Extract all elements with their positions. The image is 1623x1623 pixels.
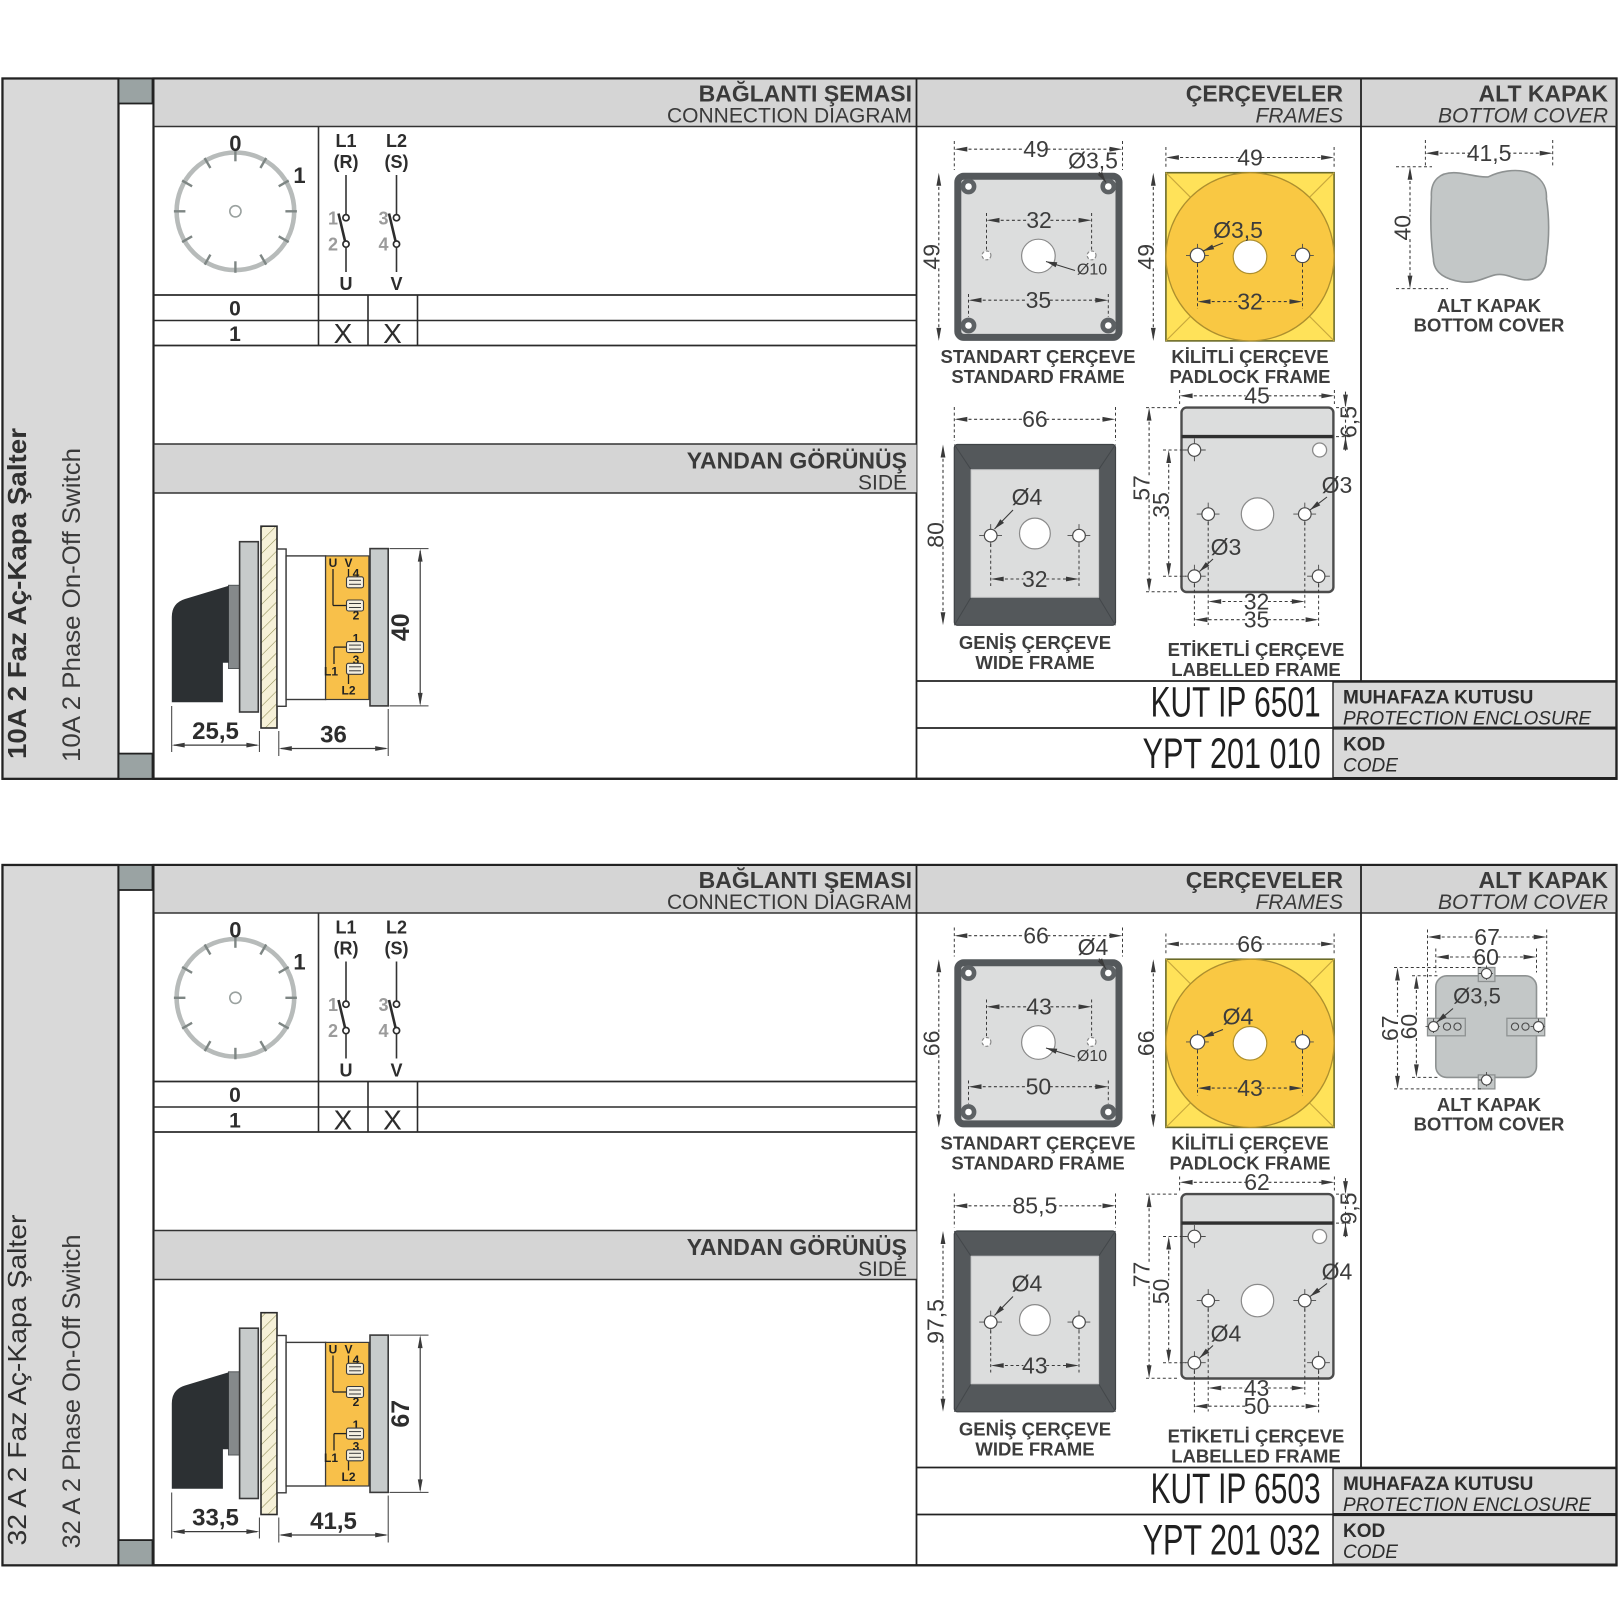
svg-text:BOTTOM COVER: BOTTOM COVER xyxy=(1438,105,1608,128)
svg-text:43: 43 xyxy=(1237,1075,1263,1101)
svg-text:50: 50 xyxy=(1148,1279,1174,1305)
svg-text:66: 66 xyxy=(1023,923,1049,949)
svg-text:BAĞLANTI ŞEMASI: BAĞLANTI ŞEMASI xyxy=(699,80,912,107)
svg-text:MUHAFAZA KUTUSU: MUHAFAZA KUTUSU xyxy=(1343,1474,1533,1495)
svg-text:GENİŞ ÇERÇEVE: GENİŞ ÇERÇEVE xyxy=(959,1419,1111,1440)
svg-text:35: 35 xyxy=(1026,287,1052,313)
svg-text:0: 0 xyxy=(229,131,241,156)
svg-text:3: 3 xyxy=(378,209,388,229)
svg-text:62: 62 xyxy=(1244,1169,1270,1195)
svg-text:PROTECTION ENCLOSURE: PROTECTION ENCLOSURE xyxy=(1343,1495,1591,1516)
svg-text:ETİKETLİ ÇERÇEVE: ETİKETLİ ÇERÇEVE xyxy=(1168,1426,1345,1447)
svg-text:LABELLED FRAME: LABELLED FRAME xyxy=(1171,659,1341,680)
svg-text:V: V xyxy=(344,556,352,570)
svg-text:4: 4 xyxy=(378,1021,388,1041)
svg-text:80: 80 xyxy=(923,522,949,548)
svg-text:Ø3,5: Ø3,5 xyxy=(1213,217,1263,243)
svg-text:49: 49 xyxy=(1133,244,1159,270)
svg-text:Ø4: Ø4 xyxy=(1012,484,1043,510)
svg-text:Ø4: Ø4 xyxy=(1223,1004,1254,1030)
svg-text:WIDE FRAME: WIDE FRAME xyxy=(975,652,1094,673)
svg-text:Ø4: Ø4 xyxy=(1012,1271,1043,1297)
svg-text:66: 66 xyxy=(1237,931,1263,957)
svg-text:YANDAN GÖRÜNÜŞ: YANDAN GÖRÜNÜŞ xyxy=(687,1234,907,1260)
svg-text:Ø10: Ø10 xyxy=(1077,1048,1107,1065)
svg-text:U: U xyxy=(340,274,353,294)
svg-text:41,5: 41,5 xyxy=(1467,140,1512,166)
svg-text:U: U xyxy=(340,1061,353,1081)
svg-text:0: 0 xyxy=(229,298,241,321)
svg-text:U: U xyxy=(329,556,338,570)
svg-text:40: 40 xyxy=(1390,215,1416,241)
svg-text:66: 66 xyxy=(918,1031,944,1057)
svg-text:MUHAFAZA KUTUSU: MUHAFAZA KUTUSU xyxy=(1343,688,1533,709)
svg-text:Ø3: Ø3 xyxy=(1322,472,1353,498)
svg-text:CODE: CODE xyxy=(1343,756,1398,777)
svg-text:0: 0 xyxy=(229,1084,241,1107)
svg-text:Ø4: Ø4 xyxy=(1322,1259,1353,1285)
svg-text:45: 45 xyxy=(1244,383,1270,409)
svg-text:BOTTOM COVER: BOTTOM COVER xyxy=(1414,1114,1565,1135)
svg-text:1: 1 xyxy=(293,163,305,188)
svg-text:L2: L2 xyxy=(386,131,407,151)
svg-text:41,5: 41,5 xyxy=(310,1508,357,1535)
svg-text:35: 35 xyxy=(1244,607,1270,633)
svg-text:CONNECTION DIAGRAM: CONNECTION DIAGRAM xyxy=(667,891,912,914)
svg-text:9,5: 9,5 xyxy=(1336,1193,1362,1225)
svg-text:X: X xyxy=(334,318,353,349)
svg-text:YANDAN GÖRÜNÜŞ: YANDAN GÖRÜNÜŞ xyxy=(687,448,907,474)
svg-text:KUT IP 6501: KUT IP 6501 xyxy=(1151,679,1321,727)
svg-text:60: 60 xyxy=(1396,1014,1422,1040)
svg-text:33,5: 33,5 xyxy=(192,1505,239,1532)
svg-text:Ø3,5: Ø3,5 xyxy=(1068,148,1118,174)
svg-text:X: X xyxy=(334,1105,353,1136)
svg-text:1: 1 xyxy=(293,950,305,975)
svg-text:X: X xyxy=(383,1105,402,1136)
svg-text:BOTTOM COVER: BOTTOM COVER xyxy=(1438,891,1608,914)
svg-text:ETİKETLİ ÇERÇEVE: ETİKETLİ ÇERÇEVE xyxy=(1168,639,1345,660)
svg-text:(R): (R) xyxy=(334,939,359,959)
svg-text:32 A 2 Phase On-Off Switch: 32 A 2 Phase On-Off Switch xyxy=(58,1235,86,1549)
svg-text:0: 0 xyxy=(229,918,241,943)
svg-text:SIDE: SIDE xyxy=(858,472,907,495)
svg-text:1: 1 xyxy=(328,209,338,229)
svg-text:L2: L2 xyxy=(341,1470,355,1484)
svg-text:6,5: 6,5 xyxy=(1336,406,1362,438)
svg-text:YPT 201 032: YPT 201 032 xyxy=(1143,1517,1321,1565)
svg-text:66: 66 xyxy=(1133,1031,1159,1057)
svg-text:32: 32 xyxy=(1237,288,1263,314)
svg-text:2: 2 xyxy=(328,235,338,255)
svg-text:(R): (R) xyxy=(334,152,359,172)
svg-text:40: 40 xyxy=(387,613,415,641)
svg-text:1: 1 xyxy=(229,323,241,346)
svg-text:10A 2 Faz Aç-Kapa Şalter: 10A 2 Faz Aç-Kapa Şalter xyxy=(2,428,32,759)
svg-text:ALT KAPAK: ALT KAPAK xyxy=(1479,867,1609,893)
svg-text:25,5: 25,5 xyxy=(192,718,239,745)
svg-text:Ø3,5: Ø3,5 xyxy=(1453,984,1501,1009)
svg-text:49: 49 xyxy=(1023,136,1049,162)
svg-text:STANDART ÇERÇEVE: STANDART ÇERÇEVE xyxy=(941,346,1136,367)
svg-text:V: V xyxy=(390,274,402,294)
svg-text:ÇERÇEVELER: ÇERÇEVELER xyxy=(1186,867,1344,893)
svg-text:L1: L1 xyxy=(335,918,356,938)
svg-text:YPT 201 010: YPT 201 010 xyxy=(1143,730,1321,778)
svg-text:L1: L1 xyxy=(324,665,338,679)
svg-text:X: X xyxy=(383,318,402,349)
svg-text:STANDART ÇERÇEVE: STANDART ÇERÇEVE xyxy=(941,1133,1136,1154)
svg-text:Ø3: Ø3 xyxy=(1211,534,1242,560)
svg-text:KOD: KOD xyxy=(1343,735,1385,756)
svg-text:43: 43 xyxy=(1022,1352,1048,1378)
svg-text:BOTTOM COVER: BOTTOM COVER xyxy=(1414,315,1565,336)
svg-text:GENİŞ ÇERÇEVE: GENİŞ ÇERÇEVE xyxy=(959,632,1111,653)
svg-text:L1: L1 xyxy=(335,131,356,151)
svg-text:43: 43 xyxy=(1026,994,1052,1020)
svg-text:ALT KAPAK: ALT KAPAK xyxy=(1479,81,1609,107)
svg-text:KİLİTLİ ÇERÇEVE: KİLİTLİ ÇERÇEVE xyxy=(1171,346,1328,367)
svg-text:CONNECTION DIAGRAM: CONNECTION DIAGRAM xyxy=(667,105,912,128)
svg-text:35: 35 xyxy=(1148,492,1174,518)
svg-text:85,5: 85,5 xyxy=(1013,1193,1058,1219)
svg-text:LABELLED FRAME: LABELLED FRAME xyxy=(1171,1446,1341,1467)
svg-text:4: 4 xyxy=(378,235,388,255)
svg-text:50: 50 xyxy=(1026,1074,1052,1100)
svg-text:ALT KAPAK: ALT KAPAK xyxy=(1437,295,1542,316)
svg-text:1: 1 xyxy=(328,995,338,1015)
svg-text:L2: L2 xyxy=(341,684,355,698)
svg-text:2: 2 xyxy=(328,1021,338,1041)
svg-text:97,5: 97,5 xyxy=(923,1299,949,1344)
svg-text:32: 32 xyxy=(1022,566,1048,592)
svg-text:3: 3 xyxy=(378,995,388,1015)
svg-text:32 A 2 Faz Aç-Kapa Şalter: 32 A 2 Faz Aç-Kapa Şalter xyxy=(2,1214,32,1545)
svg-text:KUT IP 6503: KUT IP 6503 xyxy=(1151,1465,1321,1513)
svg-text:FRAMES: FRAMES xyxy=(1255,105,1343,128)
svg-text:(S): (S) xyxy=(385,152,409,172)
svg-text:67: 67 xyxy=(387,1400,415,1428)
svg-text:(S): (S) xyxy=(385,939,409,959)
svg-text:SIDE: SIDE xyxy=(858,1258,907,1281)
svg-text:49: 49 xyxy=(1237,144,1263,170)
svg-text:Ø10: Ø10 xyxy=(1077,262,1107,279)
svg-text:10A 2 Phase On-Off Switch: 10A 2 Phase On-Off Switch xyxy=(58,448,86,762)
svg-text:STANDARD FRAME: STANDARD FRAME xyxy=(951,366,1124,387)
svg-text:V: V xyxy=(344,1343,352,1357)
svg-text:36: 36 xyxy=(320,722,347,749)
svg-text:L2: L2 xyxy=(386,918,407,938)
svg-text:49: 49 xyxy=(918,244,944,270)
svg-text:L1: L1 xyxy=(324,1451,338,1465)
svg-text:ÇERÇEVELER: ÇERÇEVELER xyxy=(1186,81,1344,107)
svg-text:CODE: CODE xyxy=(1343,1542,1398,1563)
svg-text:FRAMES: FRAMES xyxy=(1255,891,1343,914)
svg-text:50: 50 xyxy=(1244,1393,1270,1419)
svg-text:STANDARD FRAME: STANDARD FRAME xyxy=(951,1153,1124,1174)
svg-text:KİLİTLİ ÇERÇEVE: KİLİTLİ ÇERÇEVE xyxy=(1171,1133,1328,1154)
svg-text:PROTECTION ENCLOSURE: PROTECTION ENCLOSURE xyxy=(1343,709,1591,730)
svg-text:KOD: KOD xyxy=(1343,1521,1385,1542)
svg-text:BAĞLANTI ŞEMASI: BAĞLANTI ŞEMASI xyxy=(699,866,912,893)
svg-text:60: 60 xyxy=(1473,944,1499,970)
svg-text:1: 1 xyxy=(229,1110,241,1133)
svg-text:ALT KAPAK: ALT KAPAK xyxy=(1437,1094,1542,1115)
svg-text:32: 32 xyxy=(1026,207,1052,233)
svg-text:66: 66 xyxy=(1022,406,1048,432)
svg-text:Ø4: Ø4 xyxy=(1078,934,1109,960)
svg-text:Ø4: Ø4 xyxy=(1211,1321,1242,1347)
svg-text:U: U xyxy=(329,1343,338,1357)
svg-text:V: V xyxy=(390,1061,402,1081)
svg-text:WIDE FRAME: WIDE FRAME xyxy=(975,1439,1094,1460)
